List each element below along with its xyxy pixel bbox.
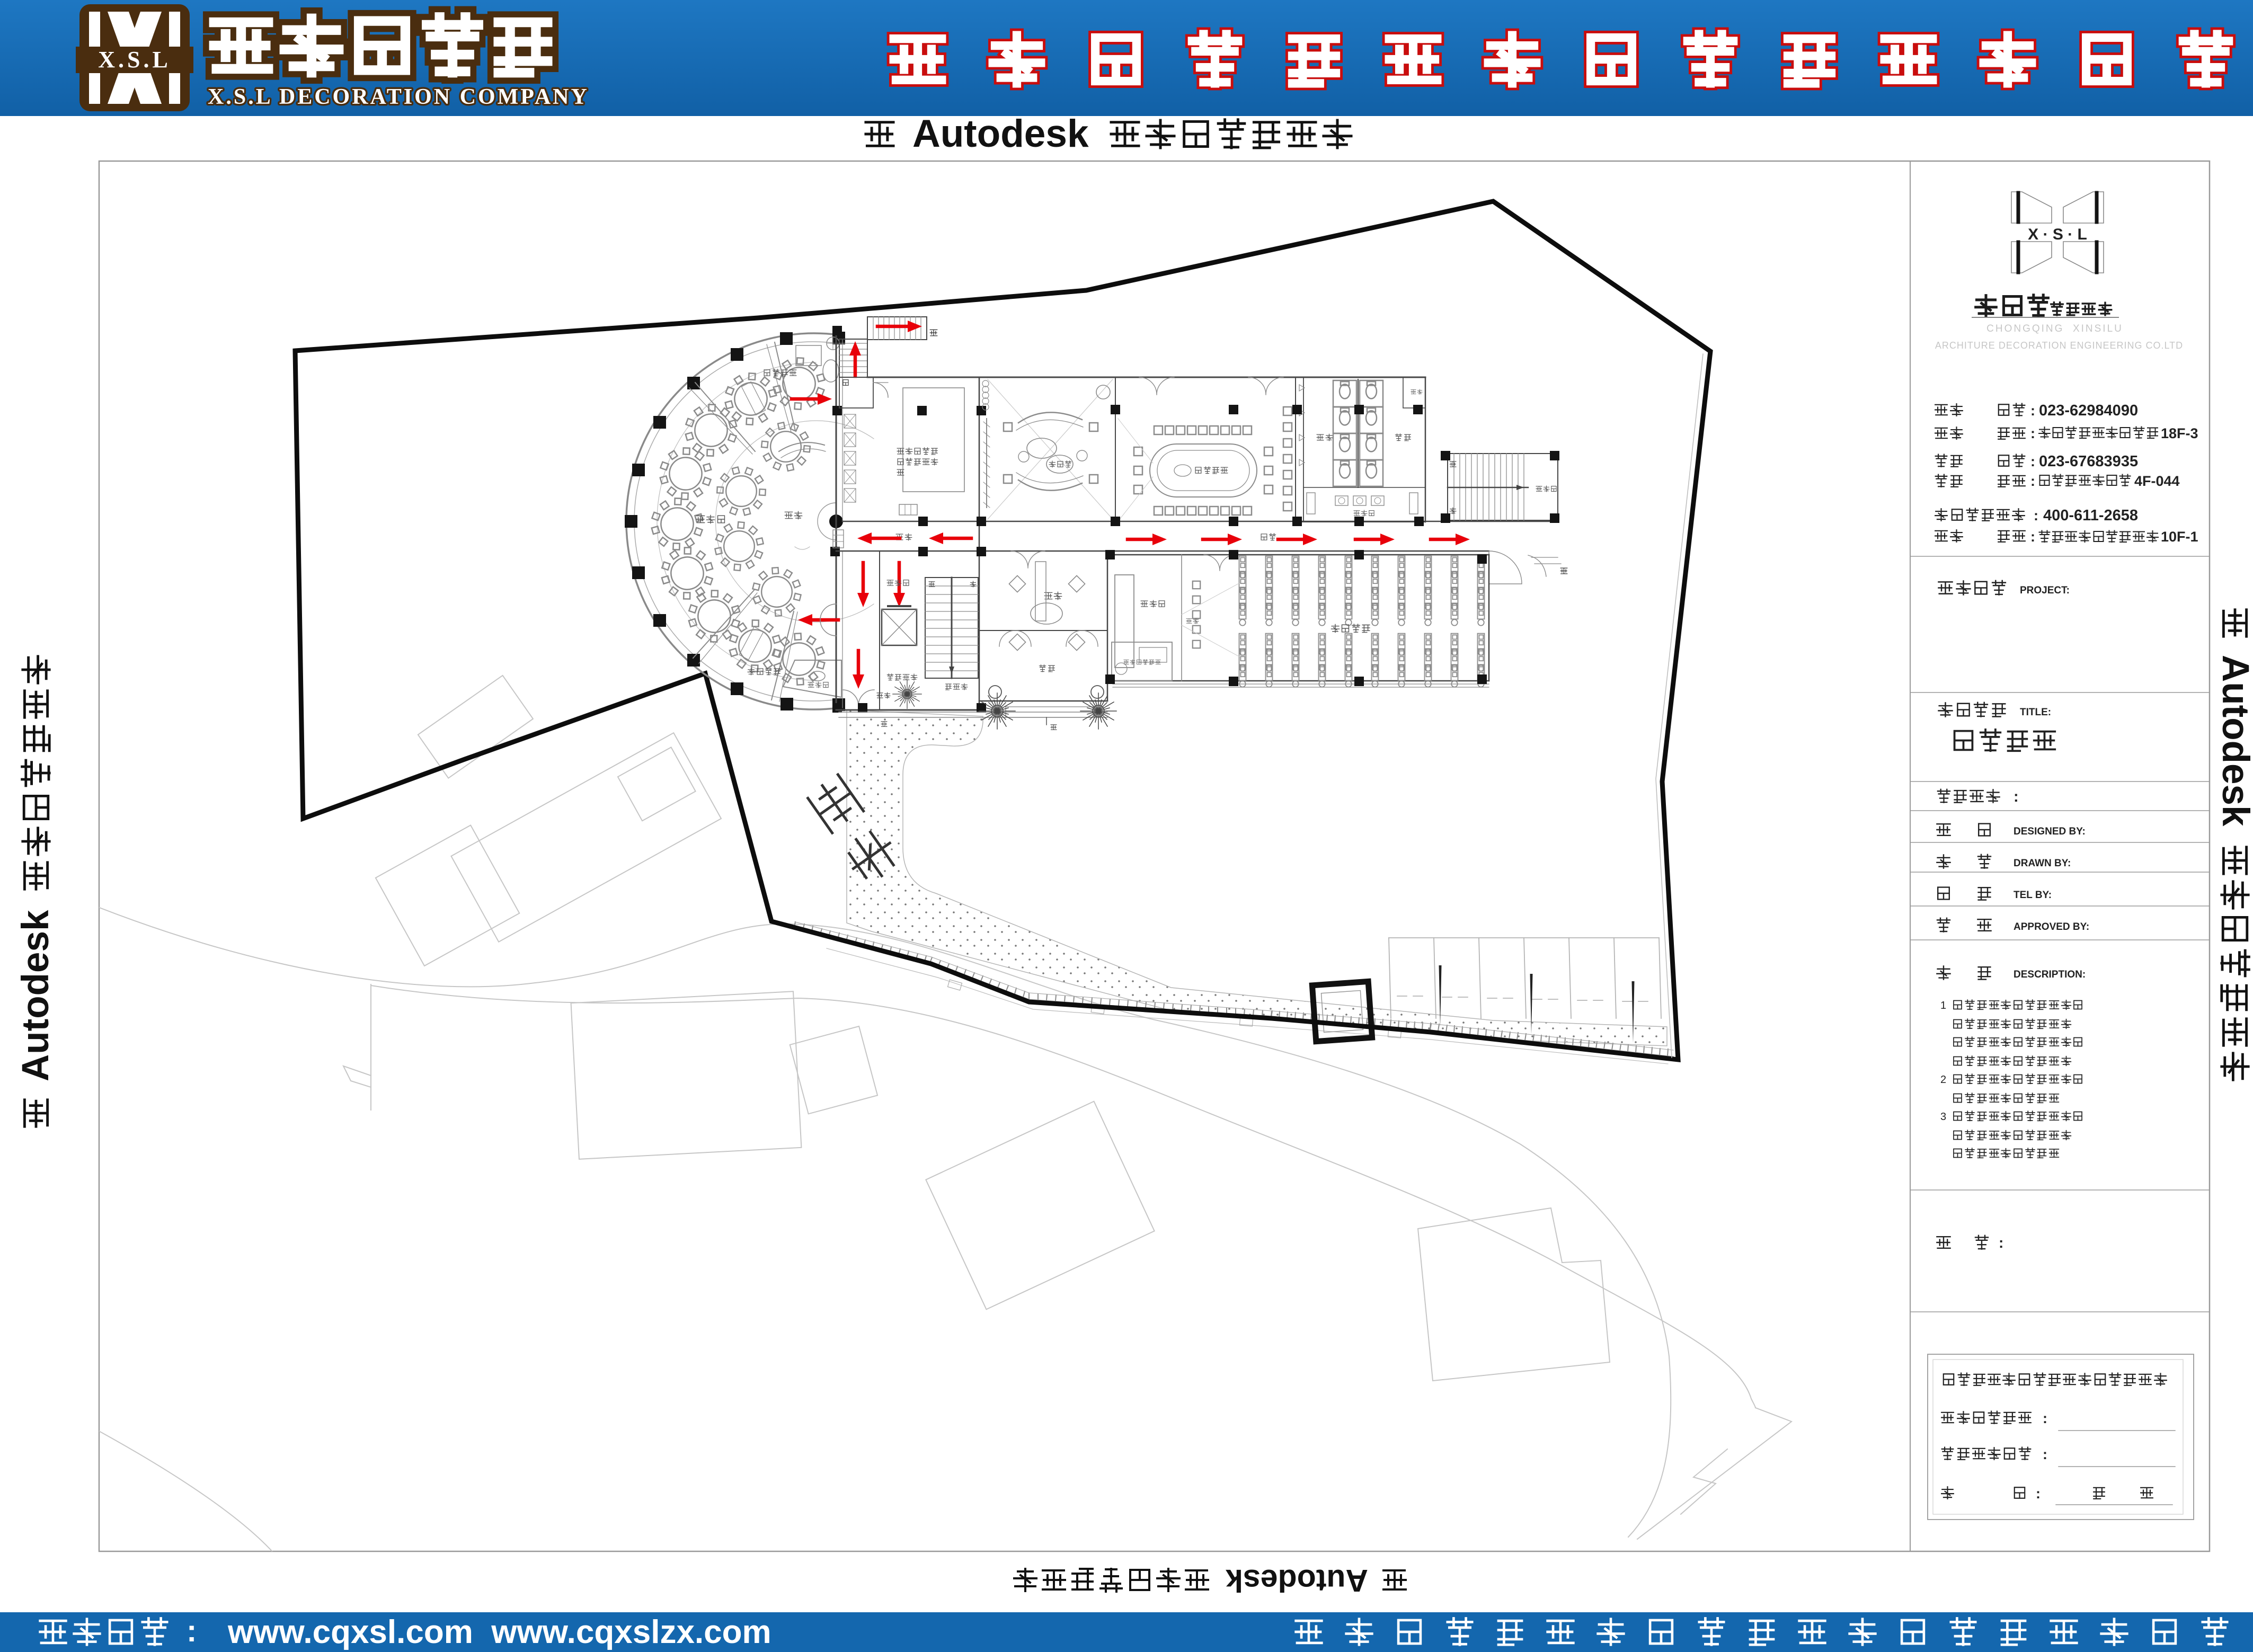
- svg-text::: :: [187, 1614, 197, 1648]
- svg-text:www.cqxsl.com www.cqxslzx.com: www.cqxsl.com www.cqxslzx.com: [227, 1614, 771, 1650]
